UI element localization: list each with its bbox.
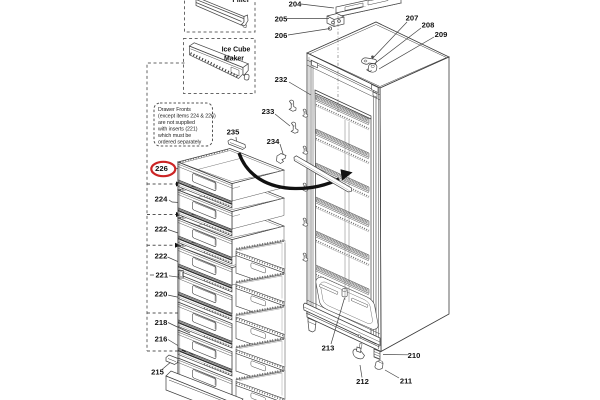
svg-text:212: 212: [356, 377, 369, 386]
svg-text:207: 207: [406, 14, 419, 23]
svg-text:221: 221: [155, 271, 168, 280]
svg-text:216: 216: [155, 335, 168, 344]
svg-text:ordered separately: ordered separately: [158, 140, 202, 146]
svg-text:205: 205: [275, 15, 288, 24]
svg-text:Maker: Maker: [224, 56, 244, 63]
svg-text:232: 232: [275, 75, 288, 84]
svg-text:235: 235: [227, 128, 240, 137]
svg-text:Filler: Filler: [232, 0, 249, 4]
svg-text:Drawer Fronts: Drawer Fronts: [158, 107, 191, 113]
svg-text:213: 213: [322, 344, 335, 353]
svg-text:234: 234: [267, 137, 280, 146]
svg-text:209: 209: [435, 30, 448, 39]
svg-text:which must be: which must be: [158, 133, 191, 139]
svg-text:233: 233: [262, 107, 275, 116]
svg-text:(except items 224 & 226): (except items 224 & 226): [158, 114, 216, 120]
svg-text:222: 222: [155, 225, 168, 234]
svg-text:211: 211: [400, 377, 413, 386]
svg-text:224: 224: [155, 195, 168, 204]
svg-text:226: 226: [155, 164, 168, 173]
svg-text:are not supplied: are not supplied: [158, 120, 195, 126]
svg-text:Ice Cube: Ice Cube: [222, 47, 251, 54]
svg-text:220: 220: [155, 290, 168, 299]
svg-text:with inserts (221): with inserts (221): [158, 127, 198, 133]
svg-text:206: 206: [275, 31, 288, 40]
svg-text:210: 210: [408, 351, 421, 360]
svg-text:222: 222: [155, 252, 168, 261]
svg-text:204: 204: [289, 0, 302, 9]
svg-text:218: 218: [155, 318, 168, 327]
svg-text:208: 208: [422, 21, 435, 30]
